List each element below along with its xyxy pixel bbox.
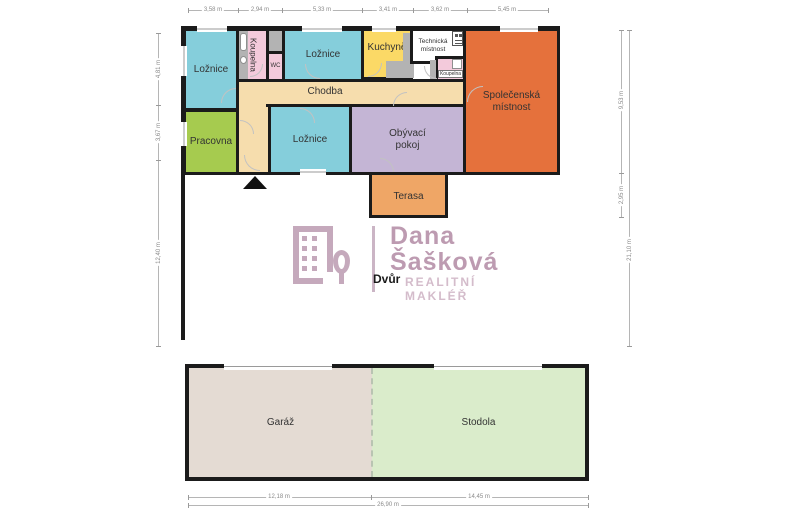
dim-tick: [362, 8, 363, 13]
sink-icon: [240, 56, 247, 64]
room-garaz: Garáž: [189, 368, 372, 477]
dim-tick: [371, 495, 372, 500]
room-label: Chodba: [280, 86, 370, 97]
entrance-arrow-icon: [243, 176, 267, 189]
dim-label: 3,67 m: [156, 121, 162, 143]
window-opening: [181, 122, 187, 146]
window-opening: [300, 169, 326, 175]
window-opening: [302, 26, 342, 32]
room-label: Společenská místnost: [477, 90, 547, 114]
building-logo-icon: [293, 226, 333, 284]
dim-tick: [156, 105, 161, 106]
magnifier-handle: [339, 273, 344, 284]
dim-label: 12,18 m: [266, 494, 292, 500]
room-label: Garáž: [267, 417, 294, 428]
dimension-line-top: [188, 10, 548, 11]
dim-label: 3,41 m: [377, 7, 399, 13]
dim-tick: [588, 495, 589, 500]
dim-tick: [619, 217, 624, 218]
dim-tick: [588, 503, 589, 508]
bathtub-icon: [240, 33, 247, 51]
window-opening: [197, 26, 227, 32]
room-label: Terasa: [393, 191, 423, 203]
room-terasa: Terasa: [369, 172, 448, 218]
dim-label: 12,40 m: [156, 240, 162, 266]
room-label: Stodola: [462, 417, 496, 428]
barn-door-opening: [434, 363, 542, 370]
watermark-name-line1: Dana: [390, 222, 455, 251]
room-label: Ložnice: [194, 64, 228, 76]
dim-tick: [619, 173, 624, 174]
dim-label: 4,81 m: [156, 58, 162, 80]
dim-label: 14,45 m: [466, 494, 492, 500]
chodba-opening-patch: [239, 101, 266, 109]
dim-label: 2,94 m: [249, 7, 271, 13]
watermark-tagline: REALITNÍ MAKLÉŘ: [405, 275, 535, 303]
dim-label: 3,58 m: [202, 7, 224, 13]
magnifier-icon: [333, 250, 350, 274]
dim-tick: [619, 30, 624, 31]
dim-label: 9,53 m: [619, 89, 625, 111]
room-label: Pracovna: [190, 136, 232, 148]
window-opening: [181, 46, 187, 76]
agency-watermark: Dana Šašková REALITNÍ MAKLÉŘ: [285, 222, 535, 297]
dim-tick: [156, 346, 161, 347]
dim-label: 5,45 m: [496, 7, 518, 13]
dim-tick: [188, 495, 189, 500]
dim-tick: [627, 30, 632, 31]
room-pracovna: Pracovna: [183, 109, 239, 175]
dim-tick: [188, 8, 189, 13]
dim-tick: [238, 8, 239, 13]
dim-tick: [467, 8, 468, 13]
dim-label: 2,95 m: [619, 184, 625, 206]
room-label: Kuchyně: [368, 42, 407, 54]
dim-tick: [548, 8, 549, 13]
dim-tick: [188, 503, 189, 508]
room-label: Koupelna: [438, 70, 463, 78]
dim-label: 5,33 m: [311, 7, 333, 13]
dim-tick: [627, 346, 632, 347]
dimension-line-right-outer: [629, 30, 630, 346]
room-label: WC: [271, 63, 281, 70]
dimension-line-bottom-segments: [188, 497, 588, 498]
room-loznice-2: Ložnice: [282, 28, 364, 82]
dim-label: 26,90 m: [375, 502, 401, 508]
floor-plan-canvas: Ložnice Pracovna Koupelna WC Ložnice Kuc…: [0, 0, 800, 511]
dim-tick: [282, 8, 283, 13]
room-label: Obývací pokoj: [378, 128, 438, 152]
boiler-icon: [452, 31, 463, 46]
window-opening: [500, 26, 538, 32]
dim-tick: [156, 160, 161, 161]
room-label: Ložnice: [306, 49, 340, 61]
dim-label: 3,62 m: [429, 7, 451, 13]
dim-tick: [156, 33, 161, 34]
room-obyvaci-pokoj: Obývací pokoj: [349, 104, 466, 175]
watermark-name-line2: Šašková: [390, 248, 498, 277]
dim-tick: [413, 8, 414, 13]
garage-door-opening: [224, 363, 332, 370]
room-label: Ložnice: [293, 134, 327, 146]
garage-barn-divider: [371, 368, 373, 477]
courtyard-wall: [181, 175, 185, 340]
room-stodola: Stodola: [372, 368, 585, 477]
room-label: Technická místnost: [415, 38, 451, 54]
room-label-dvur: Dvůr: [373, 272, 400, 286]
shower-icon: [452, 59, 462, 69]
dim-label: 21,10 m: [627, 237, 633, 263]
window-opening: [372, 26, 396, 32]
